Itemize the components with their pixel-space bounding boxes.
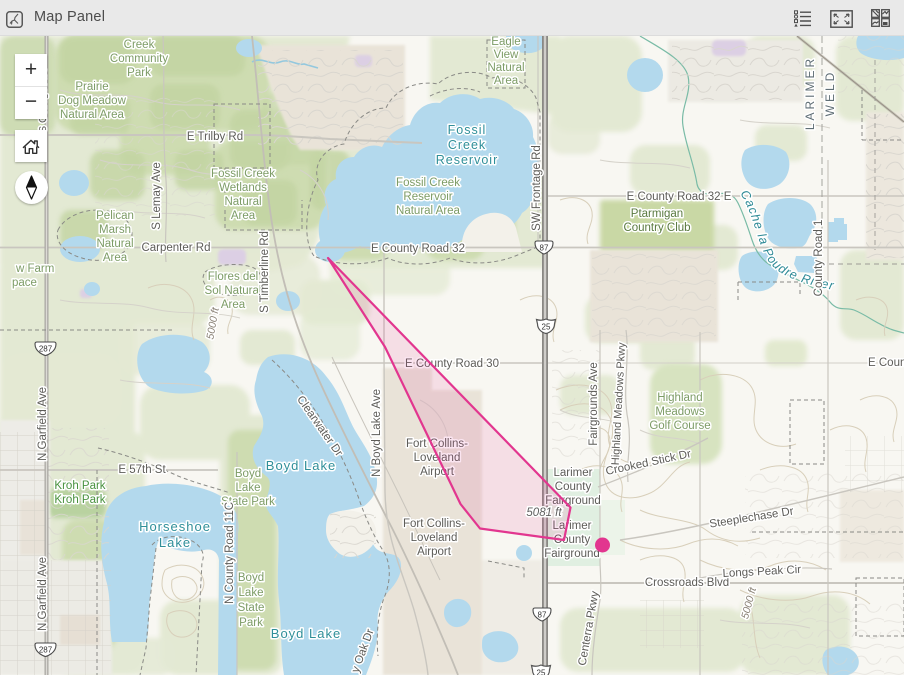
svg-text:County: County — [555, 481, 592, 493]
svg-text:Area: Area — [221, 299, 246, 311]
svg-text:Lake: Lake — [159, 535, 191, 550]
svg-text:Fossil Creek: Fossil Creek — [211, 168, 275, 180]
svg-text:N Boyd Lake Ave: N Boyd Lake Ave — [371, 389, 383, 477]
svg-text:Country Club: Country Club — [623, 222, 690, 234]
svg-text:5081 ft: 5081 ft — [526, 507, 562, 519]
svg-text:Reservoir: Reservoir — [436, 153, 499, 167]
svg-text:County Road 1: County Road 1 — [813, 220, 825, 297]
svg-text:Ptarmigan: Ptarmigan — [631, 208, 683, 220]
svg-text:25: 25 — [542, 323, 551, 332]
svg-text:Boyd: Boyd — [235, 468, 261, 480]
svg-text:Park: Park — [127, 67, 151, 79]
svg-text:287: 287 — [39, 646, 53, 655]
svg-text:Sol Natural: Sol Natural — [205, 285, 262, 297]
svg-text:pace: pace — [12, 277, 37, 289]
svg-text:E County Road 32 E: E County Road 32 E — [627, 191, 732, 203]
svg-text:Lake: Lake — [239, 587, 264, 599]
svg-text:LARIMER: LARIMER — [803, 56, 817, 130]
svg-text:Area: Area — [231, 210, 256, 222]
svg-text:Natural Area: Natural Area — [396, 205, 461, 217]
svg-text:Boyd Lake: Boyd Lake — [271, 626, 341, 641]
svg-text:Reservoir: Reservoir — [403, 191, 452, 203]
svg-text:N Garfield Ave: N Garfield Ave — [37, 557, 49, 631]
svg-text:Community: Community — [110, 53, 168, 65]
svg-text:Area: Area — [103, 252, 128, 264]
svg-text:Crossroads Blvd: Crossroads Blvd — [645, 577, 729, 589]
svg-text:N County Road 11C: N County Road 11C — [224, 502, 236, 604]
svg-text:Golf Course: Golf Course — [649, 420, 710, 432]
svg-text:Natural: Natural — [224, 196, 261, 208]
svg-text:Fairground: Fairground — [544, 548, 600, 560]
svg-text:w Farm: w Farm — [15, 263, 54, 275]
svg-text:E Trilby Rd: E Trilby Rd — [187, 131, 243, 143]
svg-text:Fort Collins-: Fort Collins- — [403, 518, 465, 530]
svg-text:Kroh Park: Kroh Park — [54, 494, 105, 506]
svg-text:S Lemay Ave: S Lemay Ave — [151, 162, 163, 230]
svg-text:287: 287 — [39, 345, 53, 354]
svg-text:Area: Area — [494, 75, 519, 87]
svg-text:SW Frontage Rd: SW Frontage Rd — [531, 145, 543, 231]
svg-text:25: 25 — [537, 669, 546, 676]
svg-text:Carpenter Rd: Carpenter Rd — [141, 242, 210, 254]
svg-text:View: View — [494, 49, 519, 61]
svg-text:Boyd Lake: Boyd Lake — [266, 458, 336, 473]
svg-text:Meadows: Meadows — [655, 406, 704, 418]
svg-text:Pelican: Pelican — [96, 210, 134, 222]
svg-text:Park: Park — [239, 617, 263, 629]
svg-text:Fairgrounds Ave: Fairgrounds Ave — [588, 362, 600, 446]
svg-text:Natural Area: Natural Area — [60, 109, 125, 121]
svg-text:S Timberline Rd: S Timberline Rd — [259, 231, 271, 313]
svg-text:E 57th St: E 57th St — [118, 464, 166, 476]
svg-text:Creek: Creek — [448, 138, 486, 152]
svg-text:Kroh Park: Kroh Park — [54, 480, 105, 492]
svg-text:Wetlands: Wetlands — [219, 182, 267, 194]
svg-text:Fossil Creek: Fossil Creek — [396, 177, 460, 189]
svg-text:Creek: Creek — [124, 39, 155, 51]
svg-text:Natural: Natural — [96, 238, 133, 250]
svg-text:Marsh: Marsh — [99, 224, 131, 236]
svg-text:State: State — [238, 602, 265, 614]
svg-text:E Coun: E Coun — [868, 357, 904, 369]
svg-text:Dog Meadow: Dog Meadow — [58, 95, 126, 107]
svg-text:Natural: Natural — [487, 62, 524, 74]
svg-text:Eagle: Eagle — [491, 36, 520, 48]
svg-text:Highland: Highland — [657, 392, 702, 404]
svg-text:Fossil: Fossil — [448, 123, 487, 137]
svg-text:Larimer: Larimer — [554, 467, 593, 479]
svg-text:Horseshoe: Horseshoe — [139, 519, 211, 534]
svg-text:87: 87 — [540, 244, 549, 253]
svg-text:Lake: Lake — [236, 482, 261, 494]
svg-text:Airport: Airport — [417, 546, 452, 558]
svg-text:N Garfield Ave: N Garfield Ave — [37, 387, 49, 461]
svg-text:Loveland: Loveland — [411, 532, 458, 544]
svg-text:E County Road 32: E County Road 32 — [371, 243, 465, 255]
svg-text:WELD: WELD — [823, 70, 837, 117]
svg-text:87: 87 — [538, 611, 547, 620]
svg-text:Boyd: Boyd — [238, 572, 264, 584]
svg-text:Flores del: Flores del — [208, 271, 259, 283]
svg-text:Prairie: Prairie — [75, 81, 108, 93]
